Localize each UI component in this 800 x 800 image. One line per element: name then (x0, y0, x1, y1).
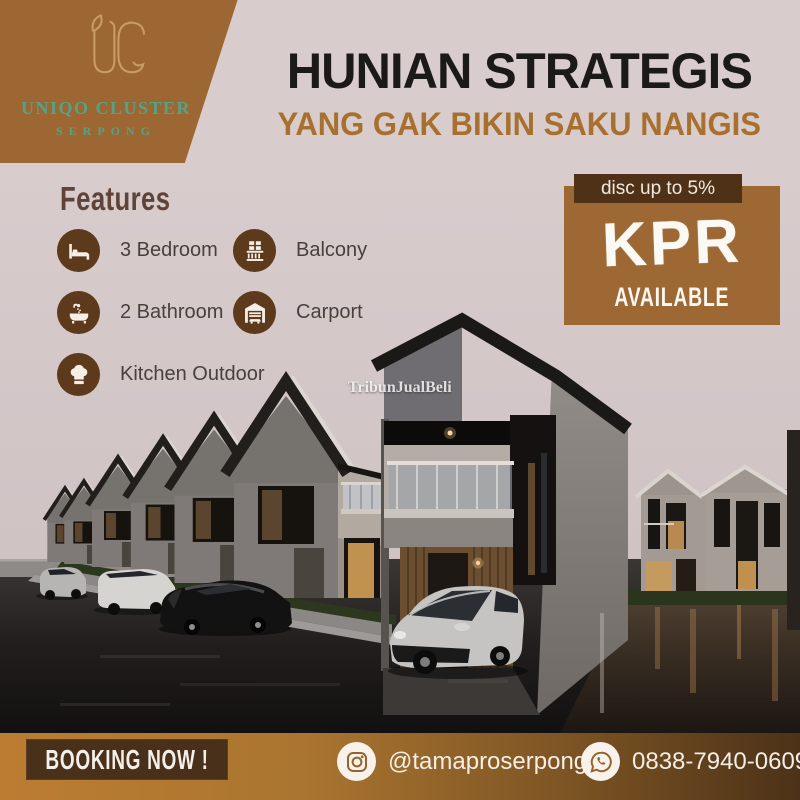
kpr-promo-badge: KPR AVAILABLE (564, 186, 780, 325)
headline: HUNIAN STRATEGIS YANG GAK BIKIN SAKU NAN… (248, 42, 790, 143)
feature-label: 2 Bathroom (120, 301, 223, 324)
bathtub-icon (57, 291, 100, 334)
discount-text: disc up to 5% (601, 178, 715, 200)
feature-label: 3 Bedroom (120, 239, 218, 262)
feature-label: Kitchen Outdoor (120, 363, 265, 386)
brand-logo: UNIQO CLUSTER SERPONG (0, 0, 240, 163)
bed-icon (57, 229, 100, 272)
feature-label: Balcony (296, 239, 367, 262)
chef-hat-icon (57, 353, 100, 396)
whatsapp-contact[interactable]: 0838-7940-0609 (581, 742, 800, 781)
feature-kitchen: Kitchen Outdoor (57, 353, 265, 396)
feature-bedroom: 3 Bedroom (57, 229, 218, 272)
feature-carport: Carport (233, 291, 363, 334)
instagram-contact[interactable]: @tamaproserpong (337, 742, 587, 781)
feature-label: Carport (296, 301, 363, 324)
watermark: TribunJualBeli (348, 379, 452, 397)
instagram-handle: @tamaproserpong (388, 748, 587, 776)
kpr-status: AVAILABLE (615, 282, 730, 313)
carport-icon (233, 291, 276, 334)
footer-bar: BOOKING NOW ! @tamaproserpong 0838-7940-… (0, 733, 800, 800)
headline-subtitle: YANG GAK BIKIN SAKU NANGIS (277, 106, 760, 143)
brand-monogram-icon (64, 12, 160, 94)
feature-balcony: Balcony (233, 229, 367, 272)
brand-name: UNIQO CLUSTER (6, 98, 206, 119)
discount-ribbon: disc up to 5% (574, 174, 742, 203)
whatsapp-number: 0838-7940-0609 (632, 748, 800, 776)
booking-now-label: BOOKING NOW ! (45, 744, 208, 776)
kpr-label: KPR (563, 204, 781, 282)
whatsapp-icon (581, 742, 620, 781)
instagram-icon (337, 742, 376, 781)
features-title: Features (60, 180, 170, 218)
booking-now-button[interactable]: BOOKING NOW ! (26, 739, 228, 780)
balcony-icon (233, 229, 276, 272)
feature-bathroom: 2 Bathroom (57, 291, 223, 334)
flyer-poster: TribunJualBeli UNIQO CLUSTER SERPONG HUN… (0, 0, 800, 800)
headline-title: HUNIAN STRATEGIS (286, 42, 751, 100)
brand-location: SERPONG (6, 124, 206, 139)
